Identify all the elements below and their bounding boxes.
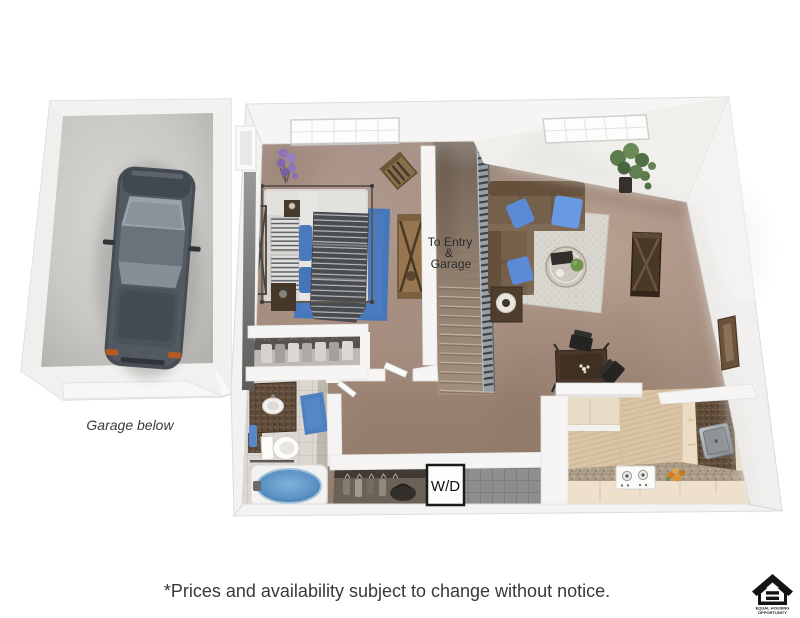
svg-text:Garage: Garage xyxy=(431,257,472,271)
svg-text:Garage below: Garage below xyxy=(86,417,174,433)
svg-text:OPPORTUNITY: OPPORTUNITY xyxy=(758,610,787,615)
svg-text:W/D: W/D xyxy=(431,478,460,495)
svg-text:*Prices and availability subje: *Prices and availability subject to chan… xyxy=(164,581,610,601)
